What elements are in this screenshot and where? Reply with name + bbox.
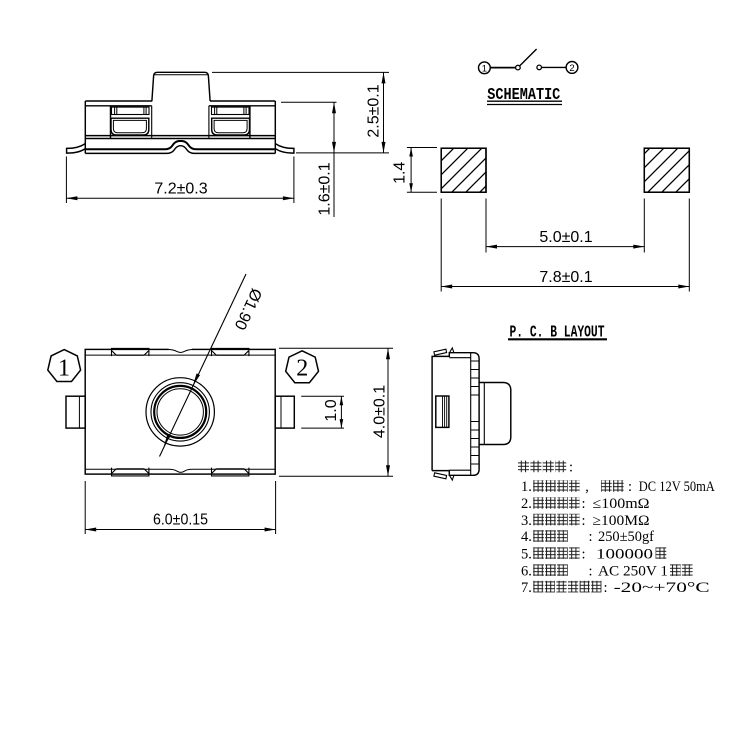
svg-text:3.: 3. bbox=[521, 513, 532, 529]
svg-text:≤100mΩ: ≤100mΩ bbox=[593, 496, 650, 512]
svg-text::: : bbox=[569, 460, 573, 476]
svg-text::: : bbox=[604, 580, 608, 596]
svg-text:-20~+70°C: -20~+70°C bbox=[614, 580, 710, 596]
svg-text:7.2±0.3: 7.2±0.3 bbox=[154, 181, 207, 198]
svg-text:5.: 5. bbox=[521, 546, 532, 562]
svg-text:100000: 100000 bbox=[596, 546, 653, 562]
svg-text:4.: 4. bbox=[521, 529, 532, 545]
svg-text::: : bbox=[582, 496, 586, 512]
svg-text:6.: 6. bbox=[521, 563, 532, 579]
svg-text::: : bbox=[589, 563, 593, 579]
svg-text:DC 12V 50mA: DC 12V 50mA bbox=[639, 479, 715, 495]
svg-text::: : bbox=[582, 546, 586, 562]
svg-text:2: 2 bbox=[569, 63, 574, 74]
svg-text::: : bbox=[582, 513, 586, 529]
svg-text:1.6±0.1: 1.6±0.1 bbox=[317, 162, 334, 215]
svg-text:1.: 1. bbox=[521, 479, 532, 495]
svg-text:7.8±0.1: 7.8±0.1 bbox=[539, 269, 592, 286]
svg-text:1: 1 bbox=[482, 64, 487, 75]
svg-text:2.5±0.1: 2.5±0.1 bbox=[366, 84, 383, 137]
svg-text:250±50gf: 250±50gf bbox=[598, 529, 654, 545]
svg-text:2.: 2. bbox=[521, 496, 532, 512]
svg-text:1.4: 1.4 bbox=[392, 162, 409, 184]
svg-text:6.0±0.15: 6.0±0.15 bbox=[153, 512, 208, 529]
svg-text:‚: ‚ bbox=[585, 479, 590, 495]
svg-text:2: 2 bbox=[296, 356, 308, 382]
svg-text:1: 1 bbox=[58, 355, 70, 381]
svg-text:7.: 7. bbox=[521, 580, 532, 596]
svg-text::: : bbox=[628, 479, 632, 495]
svg-text:≥100MΩ: ≥100MΩ bbox=[593, 513, 650, 529]
svg-text:AC 250V 1: AC 250V 1 bbox=[598, 563, 668, 579]
svg-text:1.0: 1.0 bbox=[323, 399, 340, 421]
svg-text:5.0±0.1: 5.0±0.1 bbox=[539, 229, 592, 246]
svg-text::: : bbox=[589, 529, 593, 545]
svg-text:4.0±0.1: 4.0±0.1 bbox=[372, 385, 389, 438]
